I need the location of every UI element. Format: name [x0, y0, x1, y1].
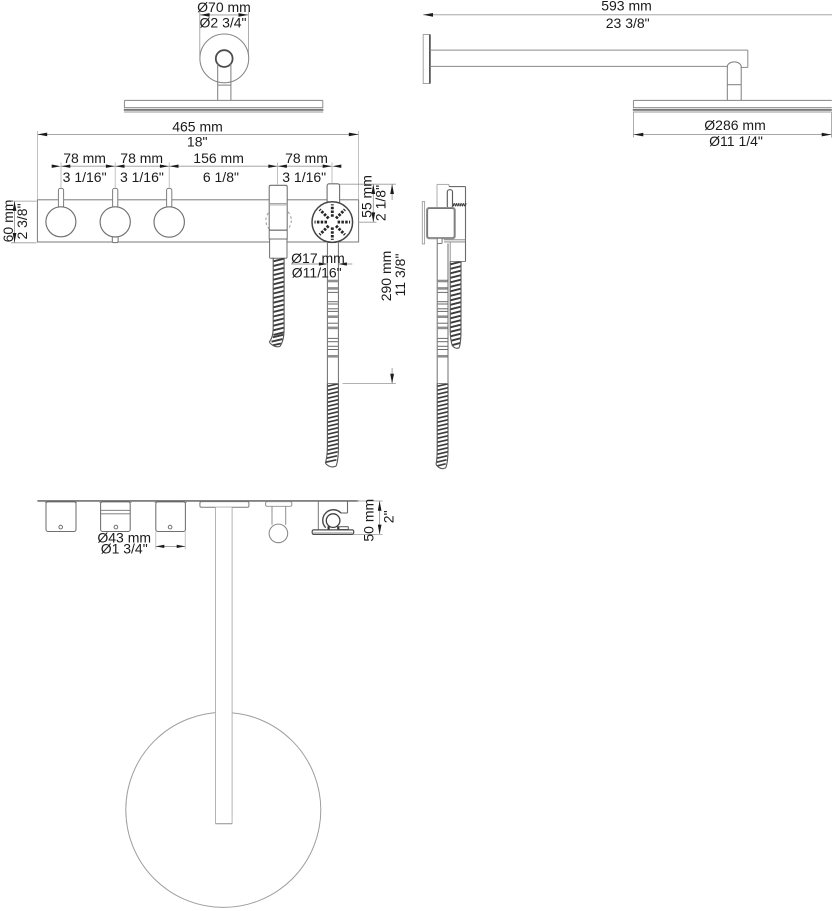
svg-text:156 mm: 156 mm — [193, 150, 244, 166]
svg-text:18": 18" — [187, 133, 208, 149]
svg-text:78 mm: 78 mm — [285, 150, 328, 166]
svg-text:Ø11/16": Ø11/16" — [292, 265, 342, 281]
svg-text:Ø286 mm: Ø286 mm — [704, 117, 765, 133]
svg-text:3 1/16": 3 1/16" — [63, 169, 107, 185]
svg-text:Ø2 3/4": Ø2 3/4" — [200, 15, 247, 31]
svg-text:465 mm: 465 mm — [172, 119, 223, 135]
svg-text:78 mm: 78 mm — [120, 150, 163, 166]
svg-text:2 1/8": 2 1/8" — [372, 185, 388, 221]
svg-text:3 1/16": 3 1/16" — [120, 169, 164, 185]
svg-text:50 mm: 50 mm — [360, 499, 376, 542]
svg-text:593 mm: 593 mm — [601, 0, 652, 14]
svg-text:78 mm: 78 mm — [63, 150, 106, 166]
svg-text:Ø11 1/4": Ø11 1/4" — [709, 133, 763, 149]
svg-text:23 3/8": 23 3/8" — [606, 15, 650, 31]
svg-text:2 3/8": 2 3/8" — [14, 203, 30, 239]
svg-text:Ø70 mm: Ø70 mm — [197, 0, 251, 15]
svg-text:2": 2" — [380, 510, 396, 523]
svg-text:Ø1 3/4": Ø1 3/4" — [101, 541, 148, 557]
svg-text:3 1/16": 3 1/16" — [282, 169, 326, 185]
svg-text:6 1/8": 6 1/8" — [203, 169, 239, 185]
svg-text:11 3/8": 11 3/8" — [392, 254, 408, 297]
